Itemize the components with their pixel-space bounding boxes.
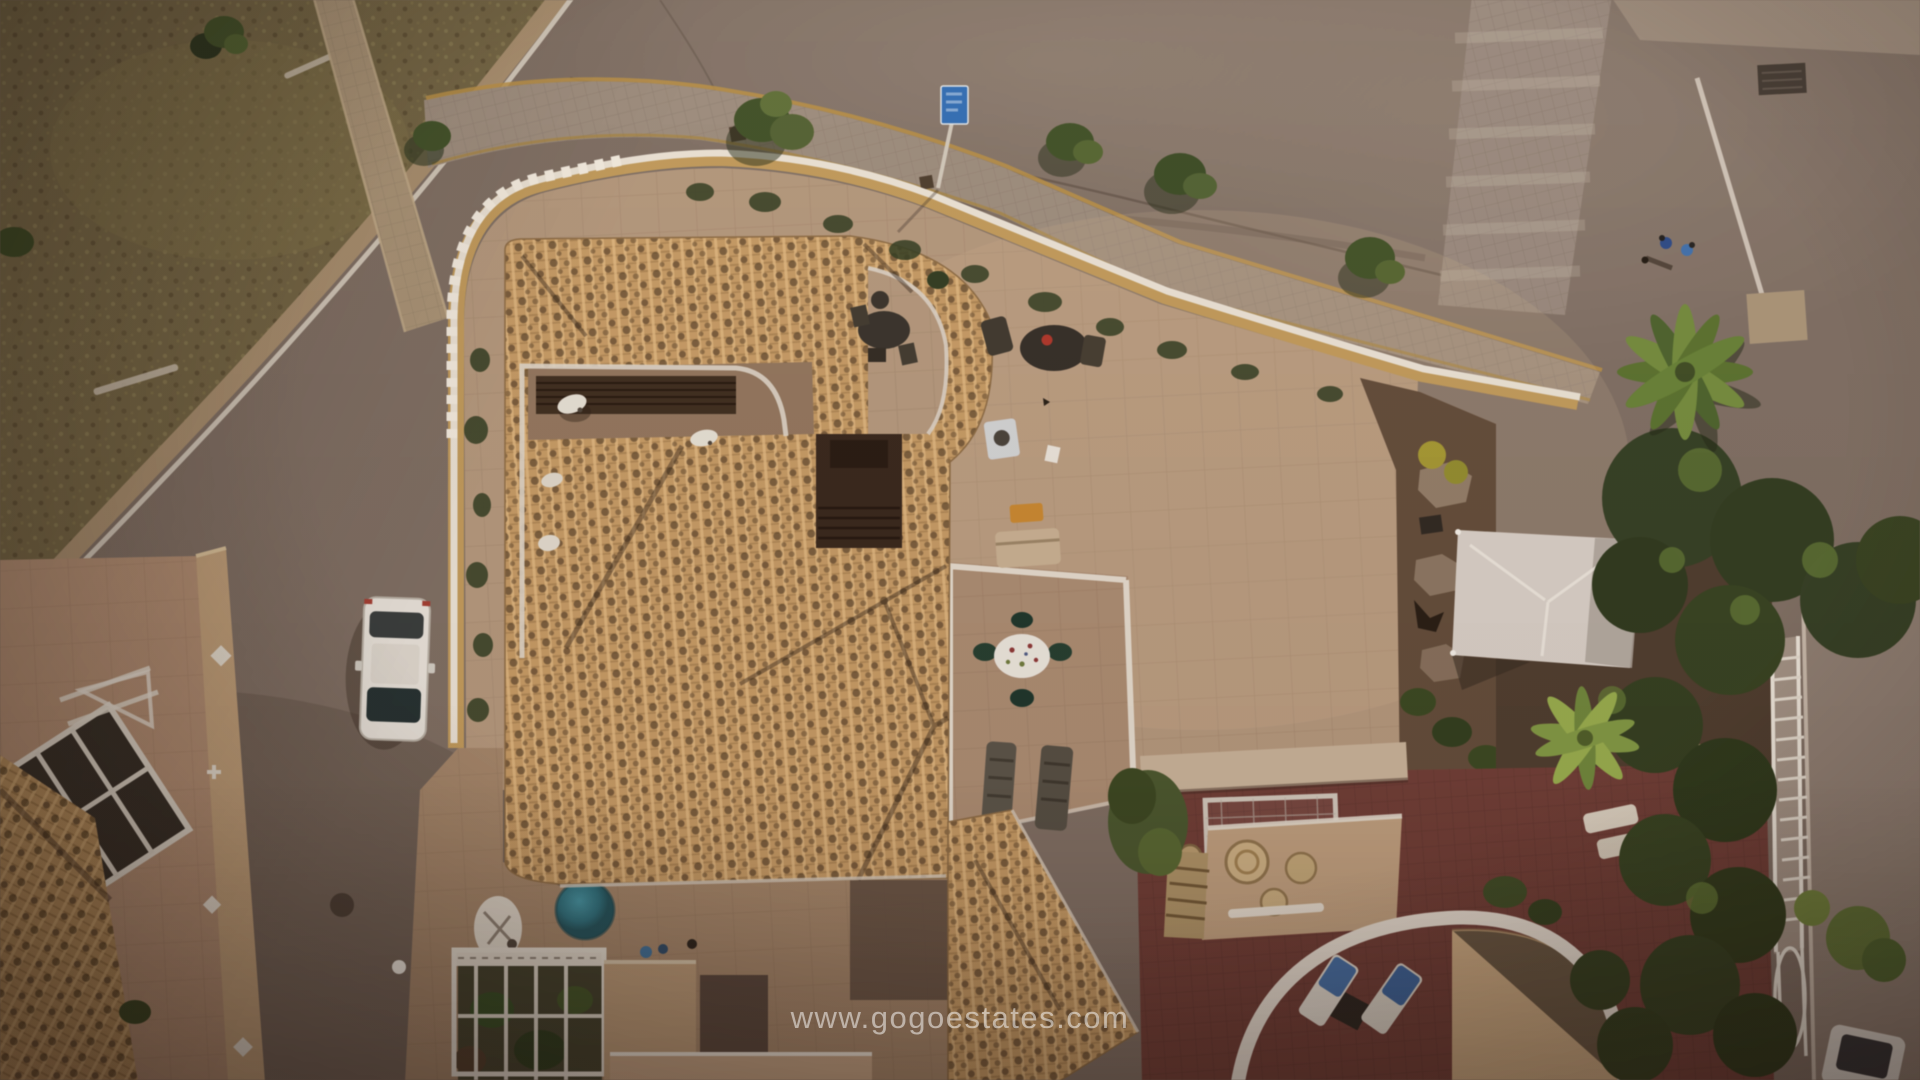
garden-bush <box>1400 688 1436 716</box>
pool-item <box>640 946 652 958</box>
shadow-zone <box>850 880 948 1000</box>
roof-atrium <box>816 434 902 548</box>
neighbour-bush <box>119 1000 151 1024</box>
outdoor-kitchen-roof <box>1179 816 1402 940</box>
wicker-tray <box>1226 841 1268 883</box>
planter <box>927 271 949 289</box>
small-table <box>983 418 1020 460</box>
bench <box>995 528 1061 568</box>
terrace-bush <box>1483 876 1527 908</box>
orange-box <box>1009 503 1043 523</box>
neighbour-property <box>0 548 265 1080</box>
round-planter <box>1444 460 1468 484</box>
barbecue <box>1419 515 1443 535</box>
manhole <box>330 893 354 917</box>
dining-terrace <box>948 562 1136 838</box>
watermark: www.gogoestates.com <box>791 1000 1130 1036</box>
concrete-pad <box>1746 290 1807 344</box>
greenhouse <box>454 950 604 1080</box>
lower-roof <box>610 1052 872 1080</box>
villa-roof <box>505 236 992 886</box>
lamp-globe <box>392 960 406 974</box>
aerial-photo: www.gogoestates.com <box>0 0 1920 1080</box>
aerial-photo-canvas <box>0 0 1920 1080</box>
round-planter <box>1418 441 1446 469</box>
wicker-tray <box>1286 853 1316 883</box>
